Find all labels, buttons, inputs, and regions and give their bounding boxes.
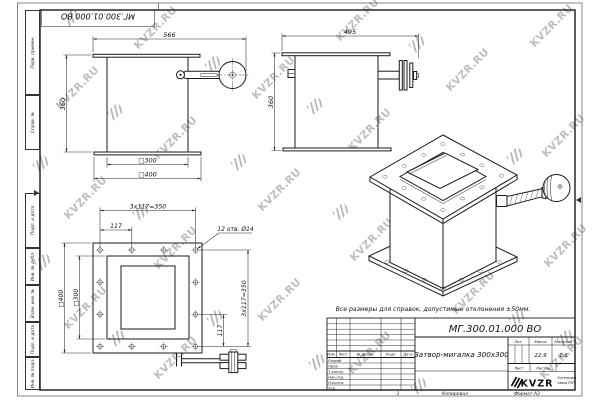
margin-field-label: Перв. примен.: [25, 10, 40, 95]
drawing-sheet: KVZR.RUKVZR.RUKVZR.RUKVZR.RUKVZR.RUKVZR.…: [0, 0, 600, 400]
margin-fields: Перв. примен.Справ. №Подп. и датаИнв. № …: [0, 0, 600, 400]
margin-field-label: Подп. и дата: [25, 193, 40, 248]
margin-field-label: Инв. № дубл.: [25, 248, 40, 285]
margin-field-label: Подп. и дата: [25, 322, 40, 357]
margin-field-label: Взам. инв. №: [25, 285, 40, 322]
margin-field-label: Справ. №: [25, 95, 40, 150]
margin-field-label: Инв. № подл.: [25, 357, 40, 390]
